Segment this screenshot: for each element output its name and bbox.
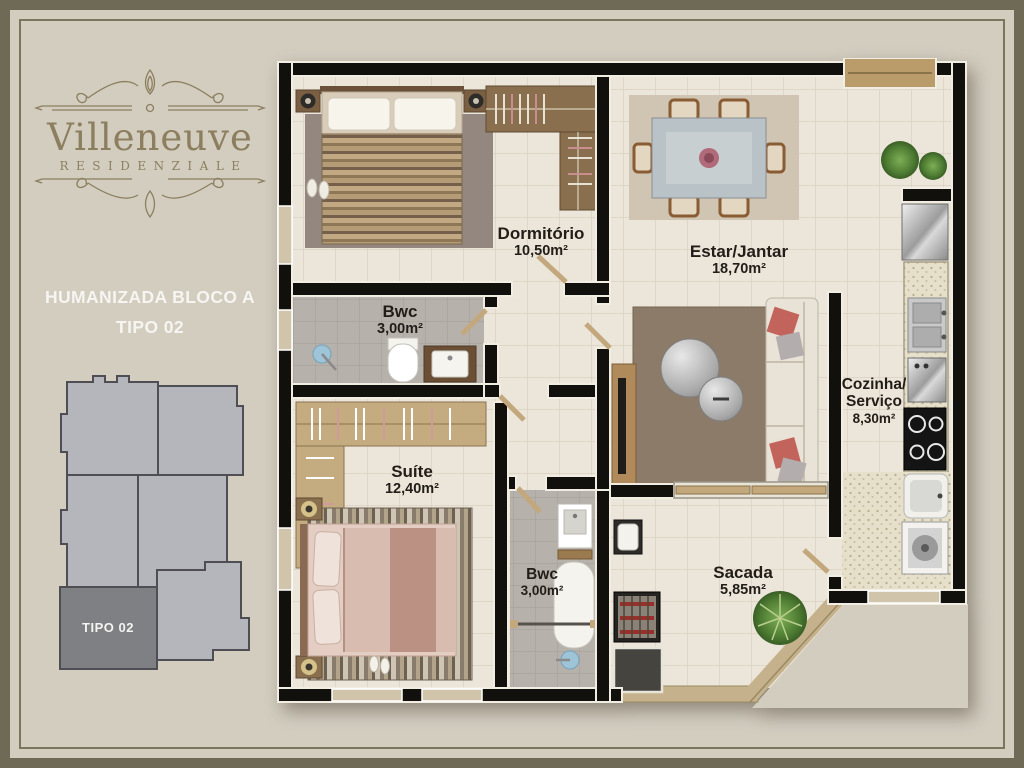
plan-caption: HUMANIZADA BLOCO A TIPO 02 [30, 287, 270, 338]
keyplan-highlight-label: TIPO 02 [82, 620, 134, 635]
wall-sacada-left [610, 484, 674, 498]
brand-logo: Villeneuve RESIDENZIALE [28, 68, 272, 224]
caption-line1: HUMANIZADA BLOCO A [30, 287, 270, 308]
laundry-tub [904, 474, 948, 518]
logo-flourish-bottom [28, 173, 272, 219]
vanity-sink [558, 504, 592, 559]
tv-cabinet [612, 364, 636, 490]
wall-dorm-bottom [564, 282, 610, 296]
page: Villeneuve RESIDENZIALE HUMANIZADA BLOCO… [0, 0, 1024, 768]
room-label-dormitorio: Dormitório 10,50m² [498, 224, 585, 259]
wall-left [278, 62, 292, 702]
keyplan-unit [61, 475, 138, 587]
window [278, 528, 292, 590]
wall-hall-living [596, 296, 610, 304]
floor-plan: Dormitório 10,50m² Estar/Jantar 18,70m² … [272, 58, 968, 708]
window [332, 689, 402, 701]
wall-suite-top [484, 384, 500, 398]
window [422, 689, 482, 701]
keyplan-unit [157, 562, 249, 660]
sliding-door-sacada [674, 482, 828, 498]
caption-line2: TIPO 02 [30, 317, 270, 338]
wall-living-right [828, 292, 842, 538]
wall-living-right [828, 576, 842, 590]
living-set [612, 298, 818, 495]
kitchen-sink [908, 298, 947, 352]
room-label-estar: Estar/Jantar 18,70m² [690, 242, 788, 277]
wall-hall-living [596, 348, 610, 490]
wall-suite-top [548, 384, 596, 398]
dining-set [629, 95, 799, 220]
plant [919, 152, 947, 180]
window [278, 310, 292, 350]
sofa-pillow [776, 332, 804, 360]
wall-bwc2-top [508, 476, 516, 490]
room-label-bwc2: Bwc 3,00m² [521, 566, 564, 598]
room-label-suite: Suíte 12,40m² [385, 462, 439, 497]
building-key-plan: TIPO 02 [55, 372, 255, 672]
double-bed [320, 86, 464, 244]
room-label-sacada: Sacada 5,85m² [713, 563, 773, 598]
room-label-cozinha: Cozinha/ Serviço 8,30m² [842, 376, 907, 426]
wall-kitchen-stub [902, 188, 952, 202]
room-label-bwc1: Bwc 3,00m² [377, 302, 423, 337]
wall-dorm-estar [596, 76, 610, 282]
window [868, 591, 940, 603]
wall-bwc2-top [546, 476, 596, 490]
logo-flourish-top [28, 68, 272, 120]
toilet [388, 338, 418, 382]
wall-suite-right [494, 402, 508, 688]
wall-right [952, 62, 966, 604]
suite-furniture [296, 402, 486, 680]
wall-bwc1-bottom [292, 384, 484, 398]
sofa [766, 298, 818, 492]
cooktop [904, 408, 946, 470]
keyplan-unit [158, 386, 243, 475]
wall-bwc1-right [484, 296, 498, 308]
vanity-sink [424, 346, 476, 382]
suite-bed [300, 524, 456, 656]
fridge [902, 204, 948, 260]
window [278, 206, 292, 264]
barbecue-grill [614, 592, 660, 642]
keyplan-unit [61, 376, 158, 475]
plant [881, 141, 919, 179]
brand-subtitle: RESIDENZIALE [28, 159, 272, 173]
grill-counter [614, 648, 662, 692]
wall-dorm-bottom [292, 282, 512, 296]
brand-name: Villeneuve [28, 119, 272, 156]
washing-machine [902, 522, 948, 574]
balcony-sink [614, 520, 642, 554]
wall-bwc2-right [596, 490, 610, 702]
